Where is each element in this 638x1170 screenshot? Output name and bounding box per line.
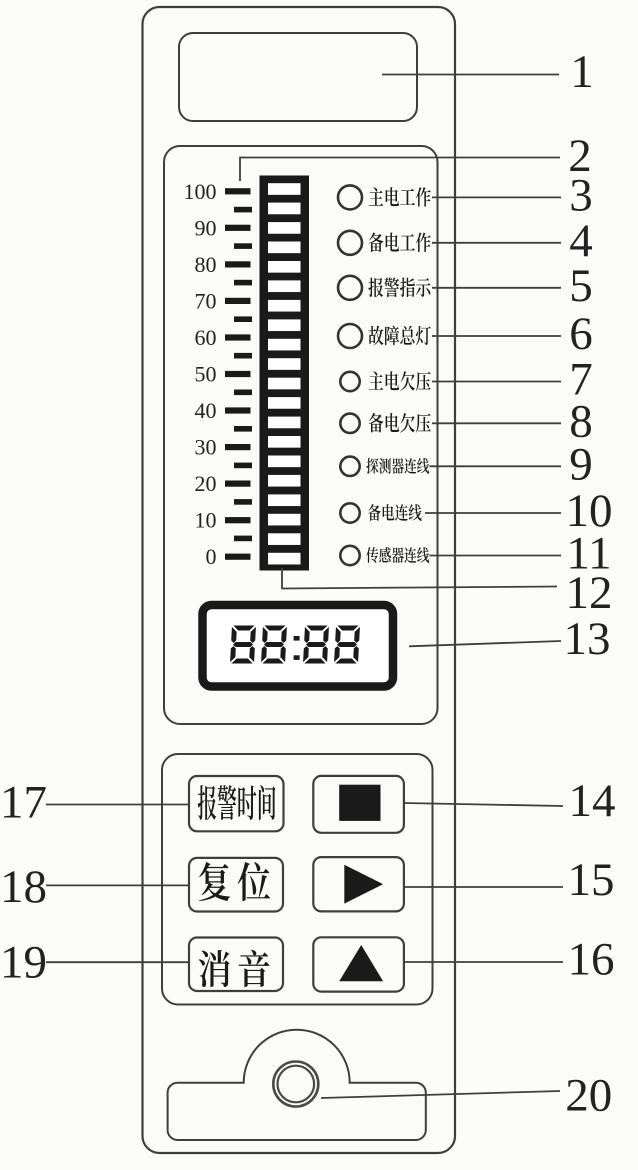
svg-text:6: 6 (569, 308, 593, 360)
svg-text:12: 12 (566, 567, 613, 619)
svg-text:80: 80 (195, 252, 217, 277)
svg-text:1: 1 (570, 46, 594, 98)
svg-text:14: 14 (569, 775, 616, 827)
svg-text:40: 40 (195, 398, 217, 423)
svg-text:16: 16 (568, 934, 615, 986)
svg-text:30: 30 (195, 435, 217, 460)
svg-text:19: 19 (0, 936, 47, 988)
svg-text:18: 18 (0, 861, 47, 913)
svg-text:20: 20 (565, 1070, 612, 1122)
svg-text:3: 3 (569, 169, 593, 221)
svg-text:0: 0 (206, 544, 217, 569)
svg-text:13: 13 (564, 613, 611, 665)
svg-text:50: 50 (195, 362, 217, 387)
svg-text:100: 100 (184, 179, 217, 204)
svg-text:20: 20 (195, 471, 217, 496)
svg-text:10: 10 (195, 508, 217, 533)
svg-text:90: 90 (195, 215, 217, 240)
svg-text:60: 60 (195, 325, 217, 350)
svg-text:9: 9 (569, 438, 593, 490)
svg-text:5: 5 (569, 260, 593, 312)
svg-text:70: 70 (195, 288, 217, 313)
svg-text:15: 15 (568, 854, 615, 906)
svg-text:17: 17 (0, 776, 47, 828)
